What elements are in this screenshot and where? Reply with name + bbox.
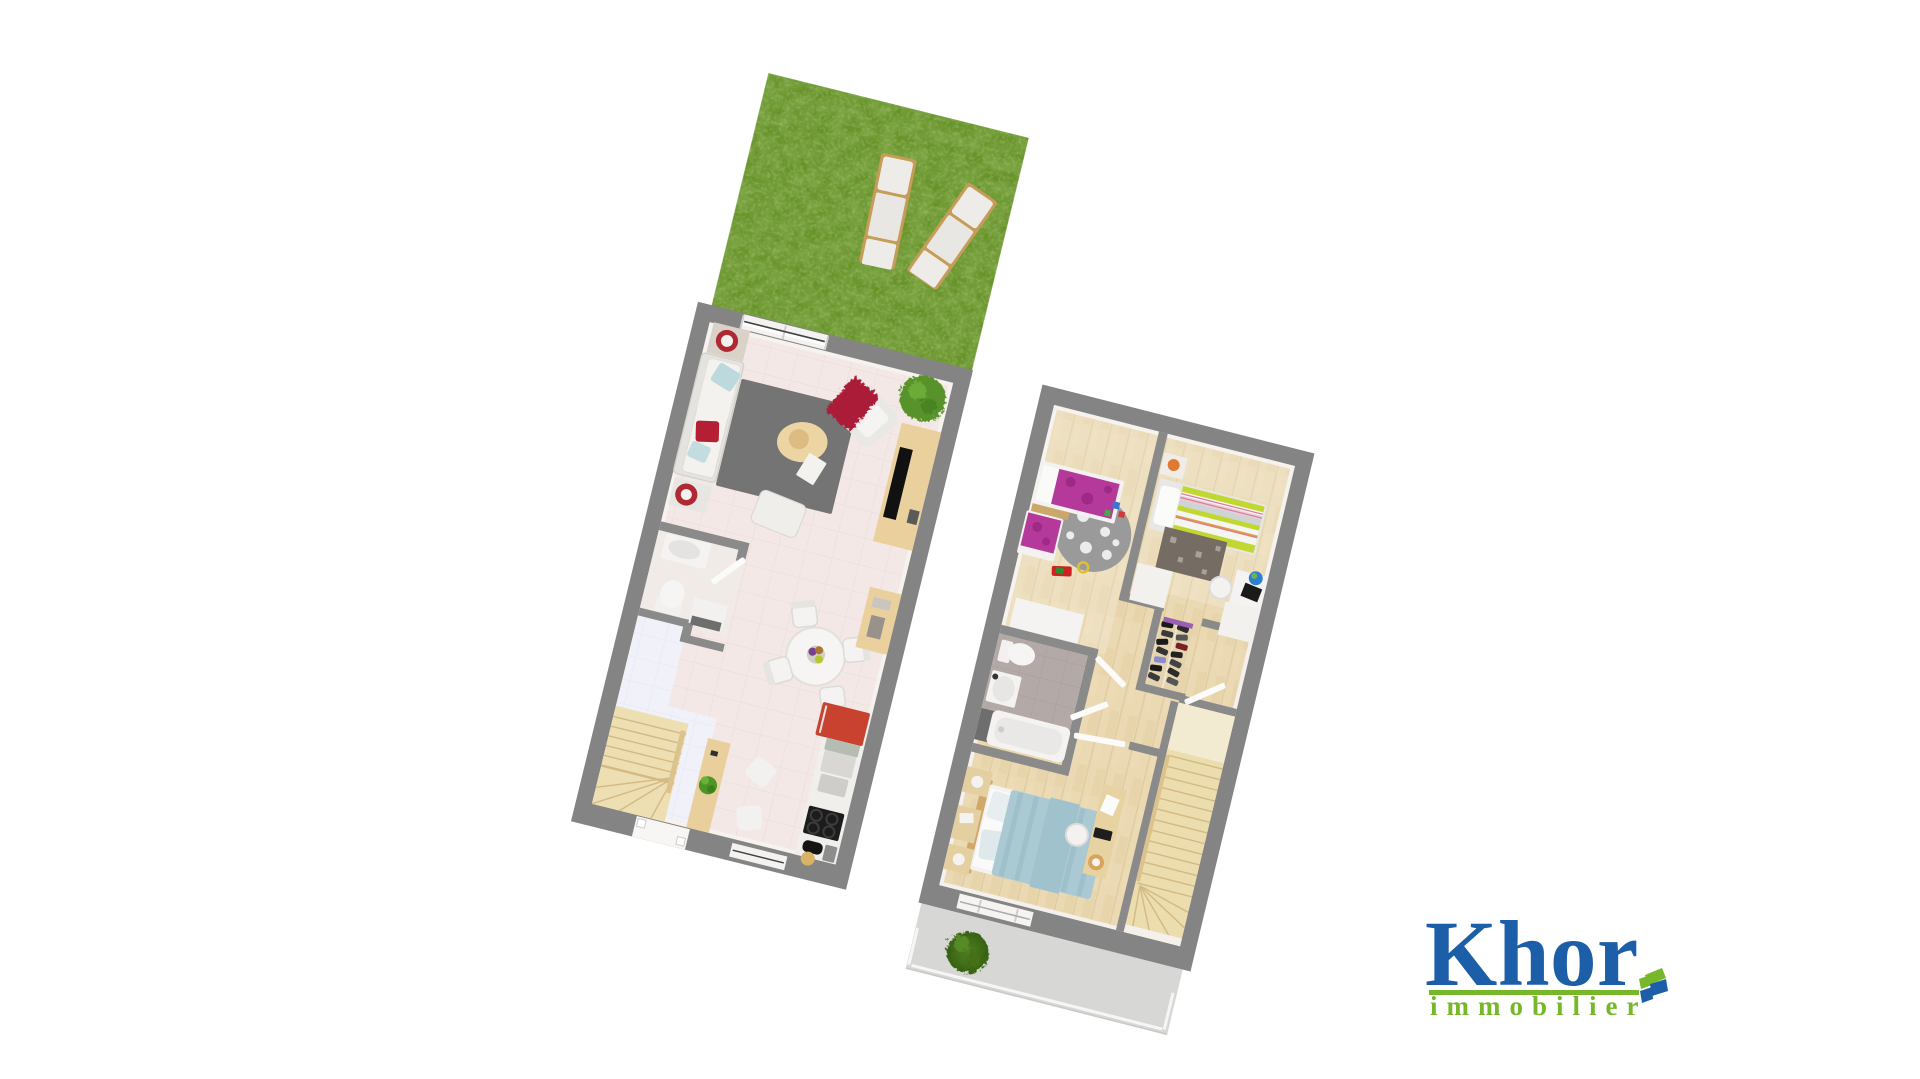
svg-text:immobilier: immobilier (1430, 991, 1647, 1021)
